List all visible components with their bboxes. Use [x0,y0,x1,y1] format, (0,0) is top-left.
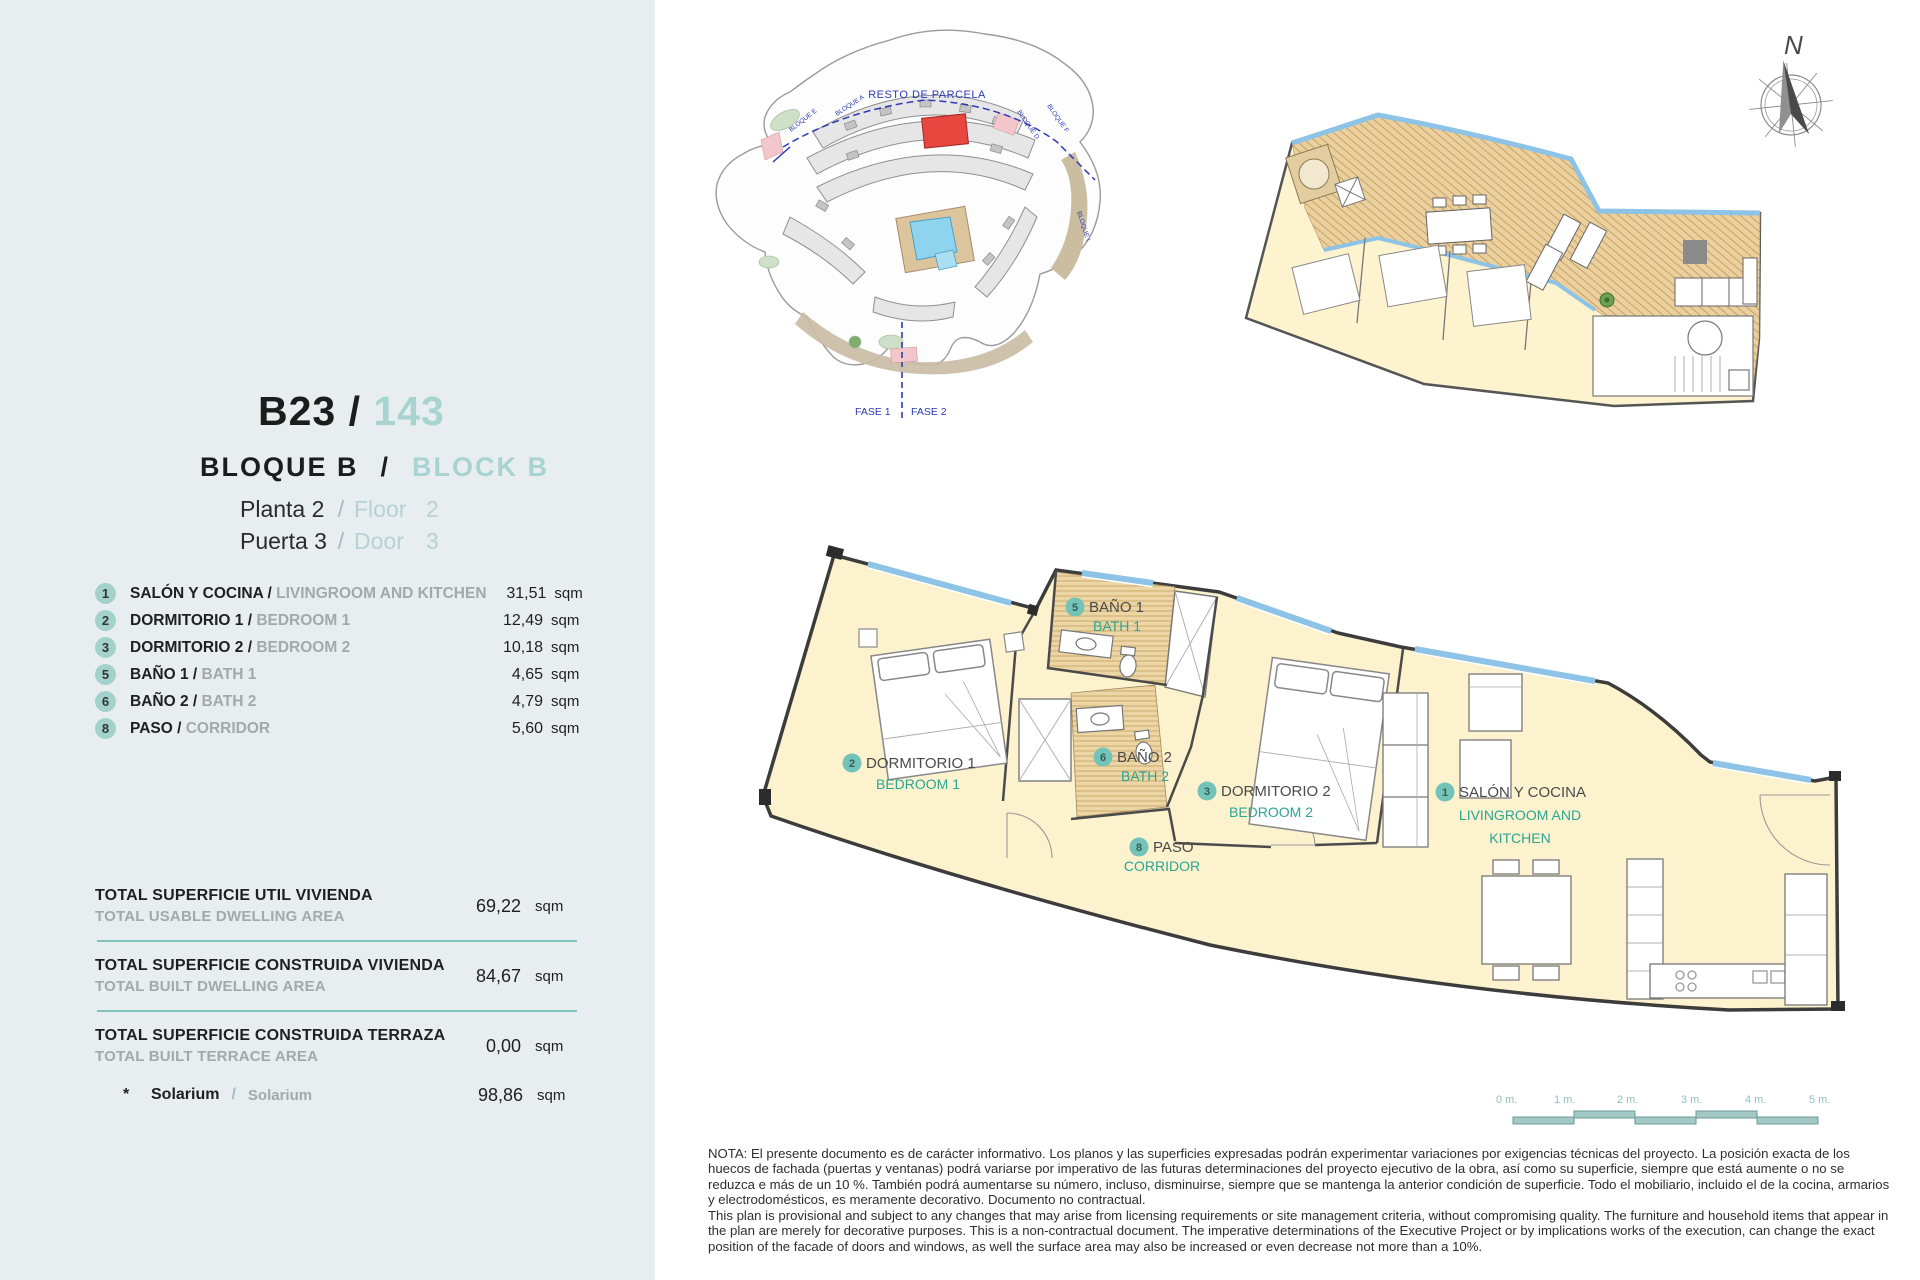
room-en: CORRIDOR [186,720,270,737]
unit-title: B23 / 143 [258,388,445,435]
block-es: BLOQUE B [200,452,359,482]
divider [97,940,577,942]
room-en: BATH 1 [202,666,257,683]
room-number-badge: 1 [95,583,116,604]
label-num: 8 [1136,842,1142,854]
totals-section: TOTAL SUPERFICIE UTIL VIVIENDA TOTAL USA… [95,880,577,1112]
resto-de-parcela-label: RESTO DE PARCELA [868,89,986,101]
room-en: BEDROOM 1 [256,612,350,629]
label-es: SALÓN Y COCINA [1459,784,1586,801]
site-plan: RESTO DE PARCELA FASE 1 FASE 2 BLOQUE E … [695,12,1160,452]
main-floor-plan: 5 BAÑO 1 BATH 1 2 DORMITORIO 1 BEDROOM 1… [755,535,1920,1065]
solarium-unit: sqm [537,1087,577,1104]
context-kitchen-stairs [1593,316,1753,396]
room-row: 6 BAÑO 2 / BATH 2 4,79 sqm [95,688,587,715]
fase2-label: FASE 2 [911,406,947,418]
label-num: 5 [1072,602,1078,614]
room-en: LIVINGROOM AND KITCHEN [276,585,486,602]
room-area-unit: sqm [551,639,587,656]
label-es: DORMITORIO 1 [866,755,976,772]
room-area-list: 1 SALÓN Y COCINA / LIVINGROOM AND KITCHE… [95,580,587,742]
unit-title-sep: / [336,388,373,434]
block-sep: / [381,452,391,482]
floor-sep: / [328,496,354,523]
total-value: 84,67 [451,966,521,987]
label-num: 2 [849,758,855,770]
scale-tick: 0 m. [1496,1094,1517,1106]
room-es: PASO / [130,720,181,737]
floor-en: Floor [354,496,426,523]
door-en: Door [354,528,426,555]
room-es: BAÑO 1 / [130,666,197,683]
room-area-unit: sqm [551,720,587,737]
highlighted-unit [922,114,969,148]
divider [97,1010,577,1012]
total-terrace-area: TOTAL SUPERFICIE CONSTRUIDA TERRAZA TOTA… [95,1020,577,1072]
label-num: 6 [1100,752,1106,764]
total-built-area: TOTAL SUPERFICIE CONSTRUIDA VIVIENDA TOT… [95,950,577,1002]
total-es: TOTAL SUPERFICIE UTIL VIVIENDA [95,887,451,905]
label-es: BAÑO 1 [1089,599,1144,616]
site-pool-area [896,206,974,272]
info-panel: B23 / 143 BLOQUE B/BLOCK B Planta 2 / Fl… [0,0,655,1280]
room-area-unit: sqm [551,612,587,629]
room-number-badge: 2 [95,610,116,631]
room-area-unit: sqm [551,666,587,683]
scale-tick: 3 m. [1681,1094,1702,1106]
room-number-badge: 3 [95,637,116,658]
plant [1600,293,1614,307]
total-es: TOTAL SUPERFICIE CONSTRUIDA TERRAZA [95,1027,451,1045]
scale-bar: 0 m. 1 m. 2 m. 3 m. 4 m. 5 m. [1496,1094,1832,1130]
scale-bar-graphic [1496,1108,1832,1128]
total-en: TOTAL BUILT DWELLING AREA [95,978,451,995]
total-unit: sqm [535,898,575,915]
scale-tick: 1 m. [1554,1094,1575,1106]
north-label: N [1784,30,1803,60]
unit-number: 143 [373,388,444,434]
room-es: DORMITORIO 2 / [130,639,252,656]
label-en-line2: KITCHEN [1489,830,1550,846]
room-number-badge: 8 [95,718,116,739]
label-en: BEDROOM 2 [1229,804,1313,820]
room-row: 5 BAÑO 1 / BATH 1 4,65 sqm [95,661,587,688]
label-num: 1 [1442,787,1448,799]
door-es: Puerta 3 [240,528,328,555]
unit-code: B23 [258,388,336,434]
label-es: PASO [1153,839,1194,856]
total-unit: sqm [535,968,575,985]
room-es: DORMITORIO 1 / [130,612,252,629]
label-es: DORMITORIO 2 [1221,783,1331,800]
solarium-value: 98,86 [453,1085,523,1106]
room-row: 2 DORMITORIO 1 / BEDROOM 1 12,49 sqm [95,607,587,634]
room-row: 3 DORMITORIO 2 / BEDROOM 2 10,18 sqm [95,634,587,661]
shower-2 [1019,699,1071,781]
solarium-row: * Solarium / Solarium 98,86 sqm [95,1078,577,1112]
room-area-unit: sqm [554,585,587,602]
door-sep: / [328,528,354,555]
door-num: 3 [426,528,439,555]
armchair [1469,674,1522,731]
solarium-en: Solarium [248,1087,453,1104]
total-usable-area: TOTAL SUPERFICIE UTIL VIVIENDA TOTAL USA… [95,880,577,932]
room-number-badge: 5 [95,664,116,685]
room-area-value: 10,18 [477,639,543,657]
total-en: TOTAL USABLE DWELLING AREA [95,908,451,925]
room-area-value: 4,65 [477,666,543,684]
room-area-value: 4,79 [477,693,543,711]
outdoor-table [1683,240,1707,264]
label-es: BAÑO 2 [1117,749,1172,766]
room-row: 8 PASO / CORRIDOR 5,60 sqm [95,715,587,742]
nightstand [1004,632,1024,652]
label-en: BATH 1 [1093,618,1141,634]
label-num: 3 [1204,786,1210,798]
room-number-badge: 6 [95,691,116,712]
sofa [1383,693,1428,847]
block-en: BLOCK B [412,452,549,482]
scale-tick: 2 m. [1617,1094,1638,1106]
room-row: 1 SALÓN Y COCINA / LIVINGROOM AND KITCHE… [95,580,587,607]
floor-line: Planta 2 / Floor 2 [240,496,439,523]
block-line: BLOQUE B/BLOCK B [200,452,549,483]
note-en: This plan is provisional and subject to … [708,1208,1894,1254]
fase1-label: FASE 1 [855,406,891,418]
solarium-es: Solarium [151,1086,219,1104]
floor-es: Planta 2 [240,496,328,523]
room-area-unit: sqm [551,693,587,710]
label-en-line1: LIVINGROOM AND [1459,807,1581,823]
nightstand [859,629,877,647]
room-es: SALÓN Y COCINA / [130,585,272,602]
room-en: BATH 2 [202,693,257,710]
door-line: Puerta 3 / Door 3 [240,528,439,555]
total-value: 0,00 [451,1036,521,1057]
total-value: 69,22 [451,896,521,917]
total-unit: sqm [535,1038,575,1055]
legal-note: NOTA: El presente documento es de caráct… [708,1146,1894,1254]
scale-tick: 5 m. [1809,1094,1830,1106]
total-en: TOTAL BUILT TERRACE AREA [95,1048,451,1065]
floor-num: 2 [426,496,439,523]
scale-tick: 4 m. [1745,1094,1766,1106]
room-area-value: 31,51 [487,585,547,603]
label-en: BATH 2 [1121,768,1169,784]
label-en: CORRIDOR [1124,858,1200,874]
solarium-star: * [123,1086,137,1104]
solarium-context-plan [1235,88,1810,423]
total-es: TOTAL SUPERFICIE CONSTRUIDA VIVIENDA [95,957,451,975]
room-area-value: 5,60 [477,720,543,738]
floorplan-document: { "colors": { "panel_bg": "#e8eef0", "ac… [0,0,1920,1280]
solarium-sep: / [231,1086,235,1104]
label-en: BEDROOM 1 [876,776,960,792]
dining-table [1482,860,1571,980]
room-en: BEDROOM 2 [256,639,350,656]
label-corridor: 8 PASO CORRIDOR [1124,838,1200,875]
room-area-value: 12,49 [477,612,543,630]
room-es: BAÑO 2 / [130,693,197,710]
note-es: NOTA: El presente documento es de caráct… [708,1146,1894,1208]
